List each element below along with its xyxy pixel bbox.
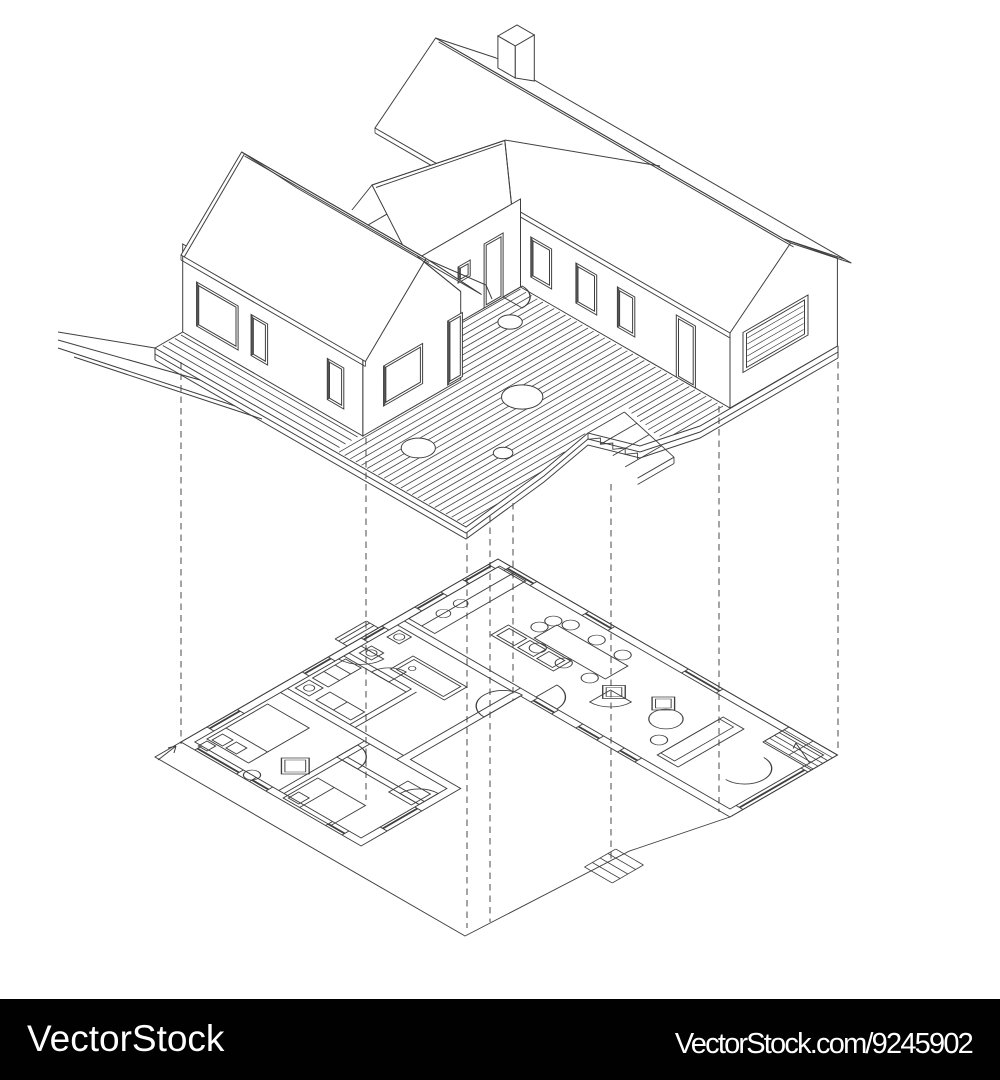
svg-text:VectorStock.com/9245902: VectorStock.com/9245902 <box>675 1028 973 1060</box>
svg-text:VectorStock: VectorStock <box>27 1018 225 1059</box>
